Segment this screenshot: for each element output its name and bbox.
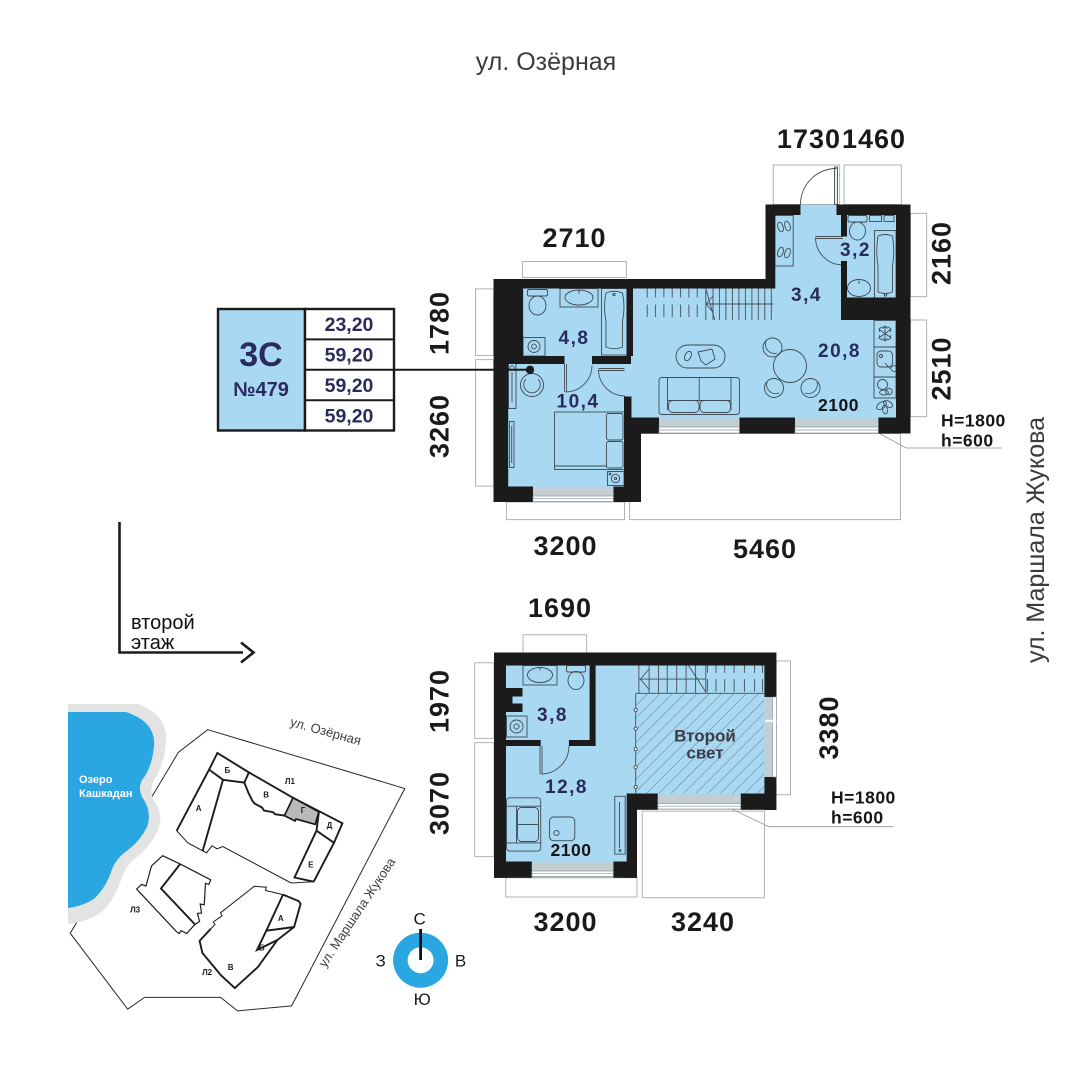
svg-text:10,4: 10,4: [557, 392, 600, 413]
svg-text:3260: 3260: [425, 394, 455, 458]
svg-text:№479: №479: [233, 379, 289, 401]
svg-text:В: В: [228, 963, 234, 972]
svg-text:3,2: 3,2: [840, 240, 871, 261]
svg-text:А: А: [278, 914, 284, 923]
svg-text:Б: Б: [225, 766, 231, 775]
svg-text:Ю: Ю: [414, 990, 431, 1009]
svg-text:H=1800: H=1800: [831, 788, 896, 808]
svg-text:Кашкадан: Кашкадан: [79, 788, 133, 800]
svg-text:4,8: 4,8: [559, 328, 590, 349]
svg-text:второй: второй: [131, 612, 195, 634]
svg-text:В: В: [455, 952, 466, 971]
svg-text:2710: 2710: [542, 223, 606, 253]
svg-text:1690: 1690: [528, 593, 592, 623]
svg-text:2160: 2160: [927, 221, 957, 285]
svg-text:3,4: 3,4: [791, 285, 822, 306]
svg-text:Е: Е: [308, 861, 314, 870]
svg-text:3С: 3С: [239, 336, 282, 374]
svg-text:1970: 1970: [425, 669, 455, 733]
svg-text:3200: 3200: [533, 907, 597, 937]
svg-text:ул. Озёрная: ул. Озёрная: [476, 48, 616, 76]
svg-text:2100: 2100: [551, 840, 592, 860]
svg-text:59,20: 59,20: [325, 375, 374, 397]
svg-text:свет: свет: [686, 744, 723, 763]
svg-text:59,20: 59,20: [325, 406, 374, 428]
svg-text:2510: 2510: [927, 336, 957, 400]
svg-text:Г: Г: [301, 806, 306, 815]
svg-text:1780: 1780: [425, 291, 455, 355]
svg-text:5460: 5460: [733, 534, 797, 564]
svg-text:23,20: 23,20: [325, 314, 374, 336]
svg-text:12,8: 12,8: [545, 777, 588, 798]
svg-text:2100: 2100: [818, 395, 859, 415]
svg-text:Л1: Л1: [285, 777, 296, 786]
svg-text:3200: 3200: [533, 531, 597, 561]
svg-text:h=600: h=600: [941, 431, 994, 451]
svg-text:59,20: 59,20: [325, 345, 374, 367]
svg-text:Л3: Л3: [130, 906, 141, 915]
svg-text:H=1800: H=1800: [941, 411, 1006, 431]
svg-text:3070: 3070: [425, 771, 455, 835]
svg-text:Озеро: Озеро: [79, 774, 113, 786]
svg-text:Д: Д: [327, 821, 333, 830]
svg-text:Л2: Л2: [202, 968, 213, 977]
svg-text:1730: 1730: [777, 124, 841, 154]
svg-text:А: А: [196, 804, 202, 813]
svg-text:3240: 3240: [671, 907, 735, 937]
svg-text:этаж: этаж: [131, 632, 175, 654]
svg-text:В: В: [263, 791, 269, 800]
svg-text:ул. Маршала Жукова: ул. Маршала Жукова: [1022, 417, 1050, 663]
svg-text:3380: 3380: [814, 695, 844, 759]
svg-text:h=600: h=600: [831, 808, 884, 828]
svg-text:1460: 1460: [842, 124, 906, 154]
svg-text:20,8: 20,8: [818, 341, 861, 362]
svg-text:З: З: [376, 952, 386, 971]
svg-text:С: С: [413, 910, 425, 929]
svg-text:Б: Б: [259, 944, 265, 953]
svg-text:3,8: 3,8: [537, 705, 568, 726]
